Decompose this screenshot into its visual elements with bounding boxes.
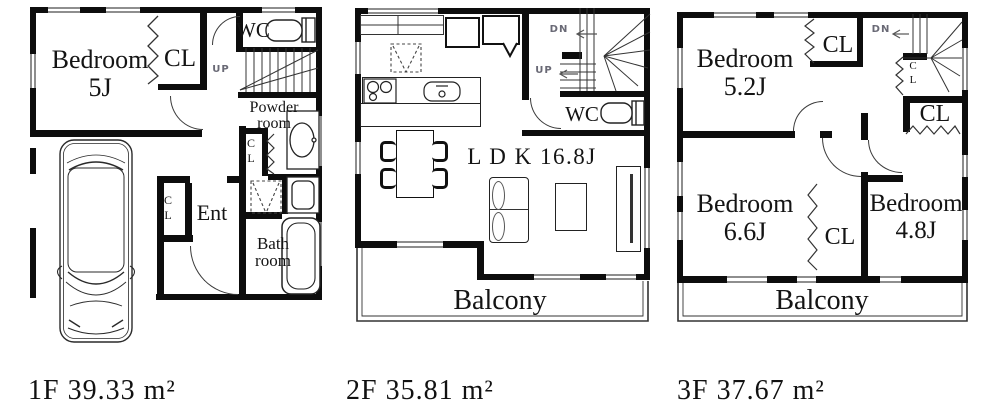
chair — [432, 141, 448, 162]
arrow-left-icon — [573, 29, 599, 39]
closet-door-zigzag — [803, 19, 816, 63]
toilet-icon — [262, 14, 318, 46]
stairs-up-label: UP — [208, 64, 234, 75]
room-label-balcony: Balcony — [444, 287, 556, 315]
window — [262, 7, 295, 13]
wall — [522, 8, 529, 100]
door-arc — [530, 98, 561, 129]
room-label-cl-top: CL — [816, 33, 860, 57]
toilet-icon — [598, 98, 648, 128]
window — [677, 48, 683, 88]
washer-pan-icon — [249, 179, 283, 215]
stove-icon — [363, 78, 397, 104]
tv-board — [616, 166, 641, 252]
arrow-left-icon — [889, 29, 911, 39]
sofa-back-cushion — [492, 212, 505, 241]
area-label-2f: 2F 35.81 m² — [346, 375, 494, 407]
arrow-left-icon — [556, 69, 580, 79]
window — [30, 54, 36, 88]
wall — [861, 172, 868, 276]
window — [677, 162, 683, 196]
window — [355, 42, 361, 74]
window — [368, 8, 438, 14]
wall — [861, 113, 868, 140]
window — [644, 168, 650, 248]
chair — [380, 141, 396, 162]
wall — [820, 131, 832, 138]
stairs-up-label: UP — [531, 65, 557, 76]
window — [962, 48, 968, 90]
room-label-bedroom-5-2j: Bedroom 5.2J — [690, 46, 800, 100]
room-label-wc: WC — [236, 20, 268, 41]
window — [774, 12, 808, 18]
door-arc — [868, 140, 902, 173]
area-label-1f: 1F 39.33 m² — [28, 375, 176, 407]
door-arc — [822, 138, 861, 177]
room-label-cl-small-ent: C L — [160, 193, 176, 223]
floorplan-canvas: Bedroom 5J CL WC UP Powder room C L C L … — [0, 0, 1000, 413]
room-label-cl-mid: CL — [818, 225, 862, 249]
room-label-cl: CL — [158, 46, 202, 71]
wall — [30, 228, 36, 298]
tv-screen-line — [630, 174, 633, 243]
kitchen-cabinet — [360, 15, 444, 35]
car-icon — [52, 136, 140, 352]
window — [677, 212, 683, 240]
wall — [30, 148, 36, 174]
wall — [677, 131, 795, 138]
wall — [810, 61, 863, 67]
wall — [238, 92, 322, 98]
room-label-balcony: Balcony — [766, 287, 878, 315]
closet-door-zigzag — [266, 134, 276, 174]
room-label-cl-small-stairs: C L — [906, 59, 920, 87]
stairs-icon — [238, 48, 320, 92]
wall — [157, 235, 193, 242]
pantry-box — [445, 17, 480, 48]
stairs-dn-label: DN — [546, 24, 572, 35]
wall — [522, 130, 650, 136]
room-label-bedroom-4-8j: Bedroom 4.8J — [868, 191, 964, 243]
wall — [227, 176, 239, 183]
wall — [158, 84, 207, 90]
coffee-table — [555, 183, 587, 231]
window — [714, 12, 756, 18]
room-label-bedroom-6-6j: Bedroom 6.6J — [690, 191, 800, 245]
door-arc — [190, 246, 238, 295]
room-label-cl-small-powder: C L — [243, 136, 259, 166]
sofa-back-cushion — [492, 181, 505, 210]
room-label-bath-room: Bath room — [244, 235, 302, 269]
area-label-3f: 3F 37.67 m² — [677, 375, 825, 407]
fridge-icon — [389, 42, 423, 74]
dining-table — [396, 130, 434, 198]
washer-icon — [285, 175, 321, 215]
room-label-ldk: L D K 16.8J — [456, 145, 608, 168]
wall — [868, 175, 903, 182]
room-label-ent: Ent — [190, 202, 234, 224]
wall — [560, 91, 650, 97]
room-label-bedroom-5j: Bedroom 5J — [40, 47, 160, 101]
chair — [432, 168, 448, 189]
room-label-powder-room: Powder room — [241, 100, 307, 132]
window — [106, 7, 140, 13]
window — [48, 7, 80, 13]
kitchen-counter-front — [360, 103, 481, 127]
window — [962, 155, 968, 177]
room-label-cl-under-stairs: CL — [913, 102, 957, 126]
sink-icon — [421, 79, 463, 104]
door-arc — [793, 101, 823, 131]
closet-callout-pointer — [502, 43, 518, 58]
door-arc — [170, 96, 203, 130]
chair — [380, 168, 396, 189]
window — [355, 142, 361, 174]
closet-callout-box — [482, 15, 520, 45]
